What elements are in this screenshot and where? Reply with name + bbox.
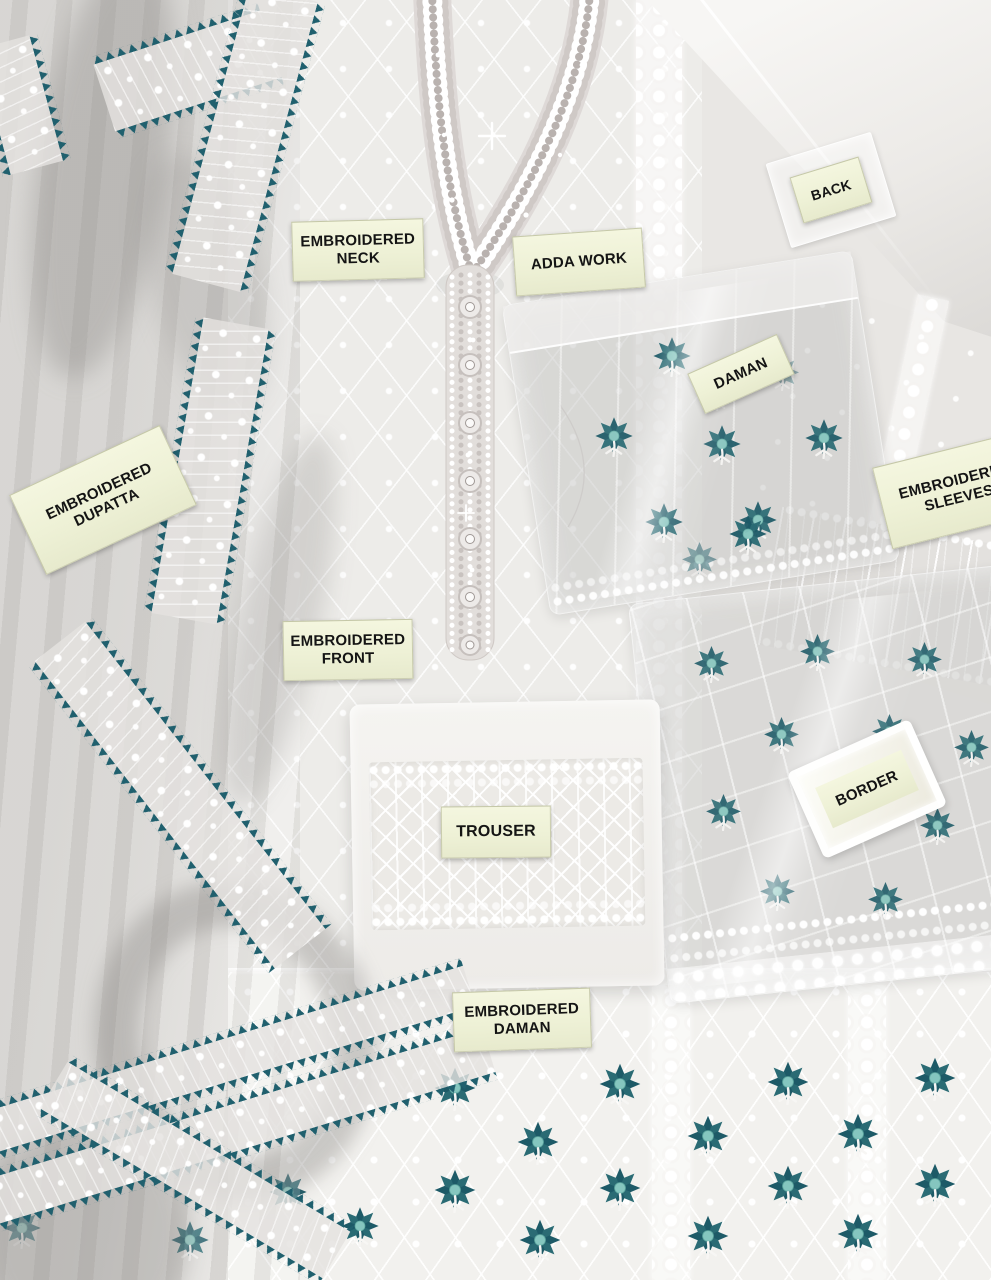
label-embroidered-front: EMBROIDERED FRONT	[282, 619, 413, 681]
label-text: DAMAN	[494, 1019, 551, 1039]
product-photo: EMBROIDERED NECK ADDA WORK BACK DAMAN EM…	[0, 0, 991, 1280]
label-text: BACK	[809, 176, 853, 204]
label-back: BACK	[790, 157, 873, 224]
label-embroidered-daman: EMBROIDERED DAMAN	[452, 988, 592, 1053]
label-border: BORDER	[815, 750, 919, 828]
label-text: BORDER	[833, 767, 901, 810]
daman-pouch	[502, 250, 901, 616]
label-trouser: TROUSER	[441, 806, 551, 859]
label-text: EMBROIDERED	[464, 1000, 579, 1022]
daman-lace-trim-right	[848, 985, 886, 1280]
label-text: FRONT	[322, 650, 375, 669]
label-embroidered-neck: EMBROIDERED NECK	[291, 218, 425, 281]
label-text: DAMAN	[711, 354, 770, 393]
label-adda-work: ADDA WORK	[512, 228, 646, 297]
label-text: NECK	[336, 249, 380, 268]
label-text: EMBROIDERED	[300, 231, 415, 252]
label-text: TROUSER	[456, 822, 536, 842]
daman-lace-trim-left	[652, 985, 690, 1280]
label-text: EMBROIDERED	[290, 631, 405, 651]
label-text: ADDA WORK	[530, 250, 627, 274]
